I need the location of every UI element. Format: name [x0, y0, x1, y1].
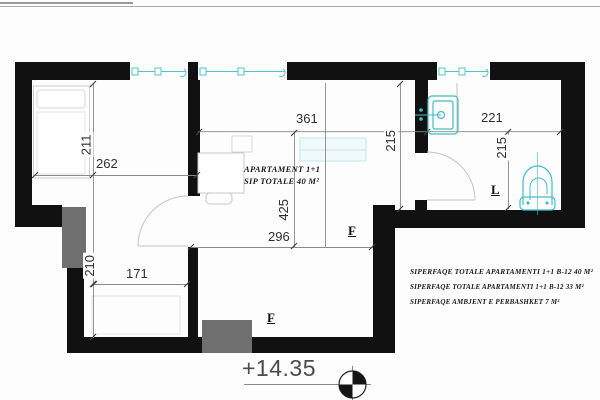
door-bathroom	[427, 152, 475, 200]
apartment-label-line1: APARTAMENT 1+1	[244, 164, 320, 176]
door-bedroom	[138, 196, 188, 246]
wall-right	[561, 62, 585, 228]
wall-top-b	[287, 62, 437, 80]
sheet-border-line-short	[0, 2, 133, 4]
dim-wc-height: 215	[495, 135, 509, 161]
wall-top-pier	[188, 62, 198, 80]
window-symbol-3	[439, 68, 488, 77]
wall-living-right	[373, 205, 395, 353]
dim-room2-width: 171	[124, 267, 150, 281]
dim-bedroom-height: 211	[80, 132, 94, 157]
area-summary-line1: SIPERFAQE TOTALE APARTAMENTI 1+1 B-12 40…	[410, 264, 593, 280]
dim-bath-width: 221	[479, 111, 505, 125]
floor-plan-canvas: 211 262 361 215 221 215 425 296 171 210 …	[0, 0, 600, 400]
wall-bedroom-right-upper	[188, 80, 200, 196]
dim-living-width: 361	[294, 112, 320, 126]
dim-living-height: 425	[277, 197, 291, 223]
wall-bedroom-right-lower	[188, 247, 198, 338]
dim-bath-height: 215	[384, 128, 398, 154]
dim-living-lower-width: 296	[266, 230, 292, 244]
wall-left-step	[15, 205, 62, 227]
apartment-label: APARTAMENT 1+1 SIP TOTALE 40 M²	[244, 164, 320, 187]
apartment-label-line2: SIP TOTALE 40 M²	[244, 176, 320, 188]
area-summary-line2: SIPERFAQE TOTALE APARTAMENTI 1+1 B-12 33…	[410, 280, 593, 296]
dim-room2-height: 210	[83, 253, 97, 279]
kitchen-counter-symbol	[300, 138, 366, 161]
wall-bath-bottom	[395, 210, 585, 228]
tag-living-f: F	[348, 223, 356, 239]
window-symbol-1	[132, 68, 186, 77]
window-symbol-2	[200, 68, 285, 77]
wall-bath-left	[415, 80, 428, 153]
wall-bath-door-stub	[415, 200, 427, 212]
level-marker-value: +14.35	[242, 355, 316, 382]
tag-wc-l: L	[491, 182, 500, 198]
wall-left-upper	[15, 62, 32, 227]
dim-bedroom-width: 262	[94, 157, 120, 171]
column-bottom	[202, 320, 252, 353]
area-summary-line3: SIPERFAQE AMBJENT E PERBASHKET 7 M²	[410, 295, 593, 311]
tag-lower-f: F	[267, 310, 275, 326]
toilet-icon	[520, 152, 555, 215]
bed2-symbol	[92, 296, 180, 334]
wall-top-a	[15, 62, 130, 80]
area-summary: SIPERFAQE TOTALE APARTAMENTI 1+1 B-12 40…	[410, 264, 593, 311]
sheet-border-line-long	[0, 6, 600, 7]
